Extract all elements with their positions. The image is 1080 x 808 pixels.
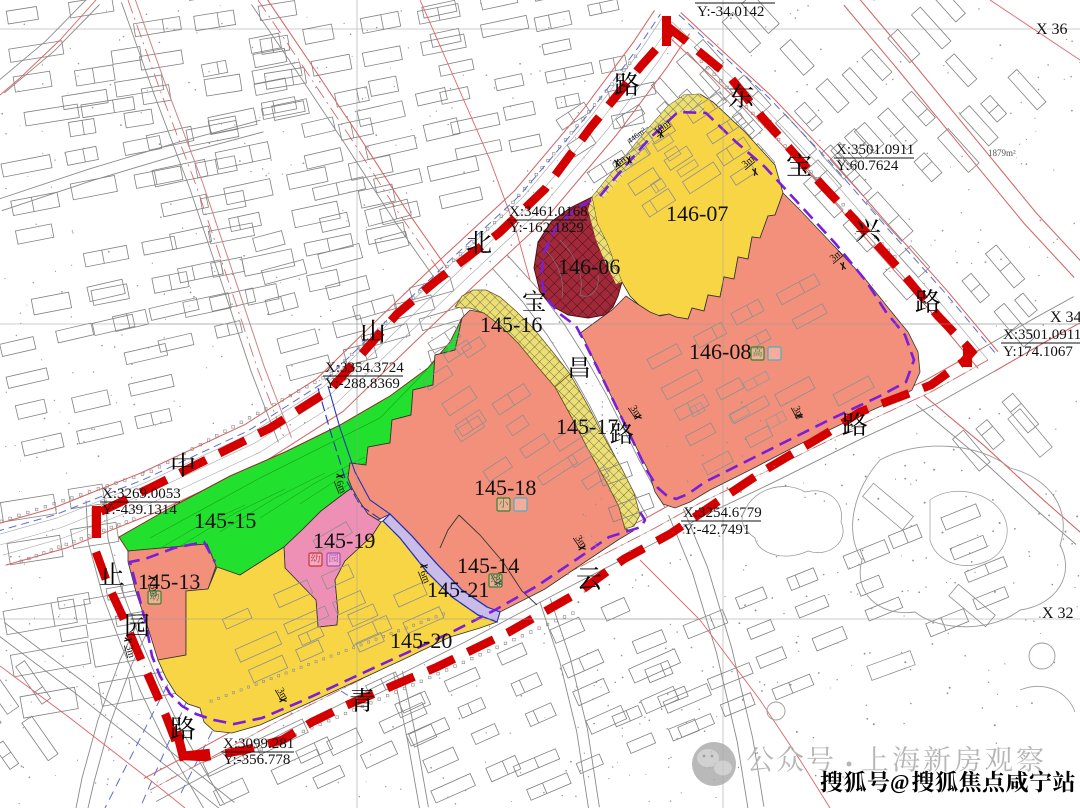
svg-text:Y:-42.7491: Y:-42.7491: [683, 522, 750, 538]
svg-text:145-18: 145-18: [474, 475, 536, 500]
svg-text:145-17: 145-17: [556, 414, 618, 439]
svg-text:Y:-356.778: Y:-356.778: [223, 752, 290, 768]
svg-text:X:3501.0911: X:3501.0911: [836, 142, 914, 158]
svg-text:X:3501.0911: X:3501.0911: [1003, 327, 1080, 343]
svg-text:145-14: 145-14: [457, 553, 519, 578]
svg-text:Y:60.7624: Y:60.7624: [836, 158, 899, 174]
svg-text:145-20: 145-20: [390, 628, 452, 653]
svg-text:X:3354.3724: X:3354.3724: [325, 360, 404, 376]
svg-text:145-13: 145-13: [138, 569, 200, 594]
svg-text:146-08: 146-08: [689, 339, 751, 364]
svg-text:145-15: 145-15: [194, 508, 256, 533]
svg-text:Y:-162.1829: Y:-162.1829: [509, 220, 584, 236]
svg-text:Y:174.1067: Y:174.1067: [1003, 344, 1073, 360]
svg-text:Y:-439.1314: Y:-439.1314: [102, 502, 177, 518]
svg-text:X:3254.6779: X:3254.6779: [683, 505, 762, 521]
svg-text:X:3099.281: X:3099.281: [223, 736, 294, 752]
svg-text:Y:-34.0142: Y:-34.0142: [697, 4, 764, 20]
svg-text:145-16: 145-16: [480, 312, 542, 337]
svg-text:146-07: 146-07: [666, 201, 728, 226]
svg-text:X 36: X 36: [1036, 21, 1068, 38]
svg-text:X 34: X 34: [1050, 309, 1080, 326]
svg-text:Y:-288.8369: Y:-288.8369: [325, 376, 400, 392]
svg-text:@: @: [890, 770, 910, 794]
svg-text:X:3269.0053: X:3269.0053: [102, 486, 181, 502]
svg-text:145-21: 145-21: [427, 577, 489, 602]
svg-text:146-06: 146-06: [558, 254, 620, 279]
svg-text:X 32: X 32: [1042, 605, 1074, 622]
svg-text:1879m²: 1879m²: [988, 148, 1016, 158]
svg-text:145-19: 145-19: [313, 528, 375, 553]
svg-text:X:3461.0168: X:3461.0168: [509, 204, 588, 220]
